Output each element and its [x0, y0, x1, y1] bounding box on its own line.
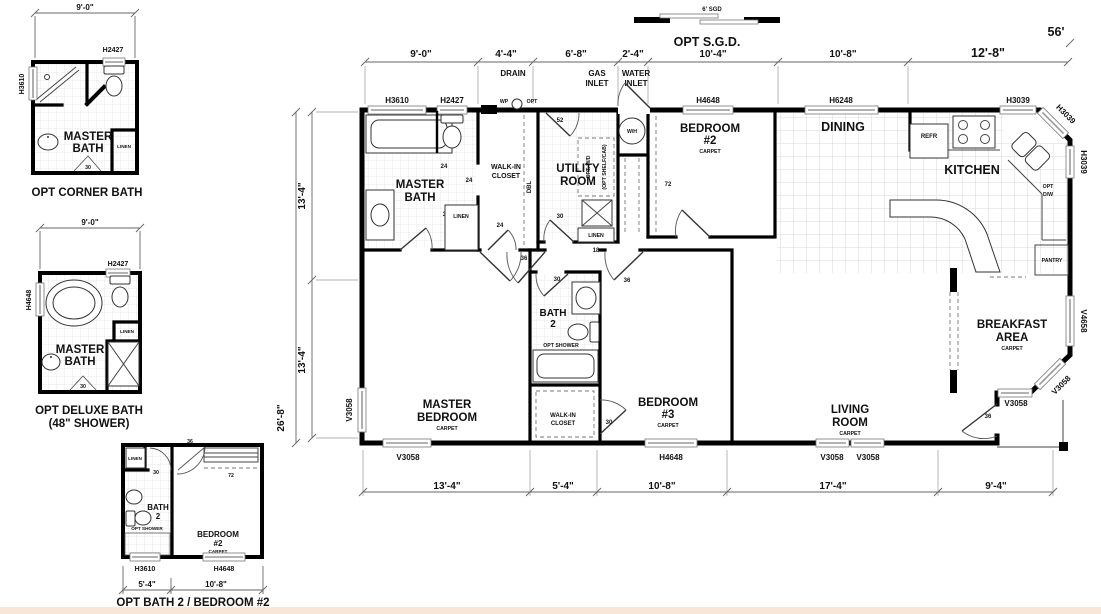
door-size: 36	[985, 414, 992, 420]
linen-label: LINEN	[588, 233, 604, 239]
refrigerator: REFR	[910, 124, 948, 158]
door-size: 36	[521, 256, 528, 262]
closet-size: 72	[228, 473, 234, 479]
carpet-label: CARPET	[839, 431, 861, 437]
shower-48	[108, 342, 139, 386]
master-sink	[366, 190, 394, 240]
svg-text:REFR: REFR	[921, 134, 938, 140]
door-size: 30	[153, 470, 159, 476]
room-label: KITCHEN	[944, 163, 1000, 177]
floorplan-drawing: 9'-0" H2427 H3610 MASTER BATH LINEN 30 O…	[0, 0, 1101, 614]
room-label: #2	[214, 539, 223, 548]
room-label: #2	[704, 135, 717, 147]
exterior-vent	[481, 105, 497, 114]
door-size: 24	[466, 178, 473, 184]
bottom-dimensions: 13'-4" 5'-4" 10'-8" 17'-4" 9'-4"	[359, 450, 1057, 496]
dbl-label: DBL	[527, 181, 533, 194]
window-label: H4648	[214, 566, 235, 573]
dim-label: 13'-4"	[297, 346, 308, 373]
floorplan-page: 9'-0" H2427 H3610 MASTER BATH LINEN 30 O…	[0, 0, 1101, 614]
door-size: 30	[80, 384, 86, 390]
sink	[126, 490, 142, 504]
linen-label: LINEN	[120, 329, 134, 334]
range	[953, 116, 995, 148]
room-label: #3	[662, 409, 675, 421]
dim-label: 17'-4"	[819, 481, 846, 492]
sink	[38, 134, 58, 150]
room-label: UTILITY	[556, 163, 600, 175]
water-heater: W/H	[619, 118, 645, 144]
door-size: 24	[497, 223, 504, 229]
dim-label: 9'-4"	[985, 481, 1007, 492]
room-label: WALK-IN	[491, 164, 521, 171]
garden-tub	[46, 280, 102, 326]
door-size: 18	[593, 248, 600, 254]
door-size: 30	[85, 165, 91, 171]
carpet-label: CARPET	[657, 423, 679, 429]
linen-label: LINEN	[117, 144, 131, 149]
gas-inlet-label: INLET	[585, 79, 608, 88]
room-label: BATH	[72, 143, 103, 155]
dishwasher-label: D/W	[1043, 192, 1053, 198]
window-label: H3610	[385, 96, 409, 105]
dim-label: 12'-8"	[971, 46, 1005, 60]
bath2-toilet	[568, 322, 599, 342]
inset-caption-sub: (48" SHOWER)	[49, 418, 130, 430]
toilet	[104, 66, 124, 96]
room-label: AREA	[996, 332, 1029, 344]
window-label: H3039	[1006, 96, 1030, 105]
window-label: V3058	[396, 453, 420, 462]
room-label: BEDROOM	[680, 123, 740, 135]
main-plan: 9'-0" 4'-4" 6'-8" 2'-4" 10'-4" 10'-8" 12…	[276, 25, 1088, 496]
room-label: ROOM	[560, 176, 596, 188]
room-label: MASTER	[423, 399, 472, 411]
room-label: CLOSET	[551, 421, 576, 427]
drain-label: DRAIN	[500, 69, 526, 78]
inset-caption: OPT DELUXE BATH	[35, 405, 143, 417]
room-label: BATH	[147, 503, 169, 512]
window-label: V3058	[345, 398, 354, 422]
window-label: H3610	[135, 566, 156, 573]
room-label: MASTER	[396, 179, 445, 191]
window-label: H2427	[103, 47, 124, 54]
room-label: BEDROOM	[417, 412, 477, 424]
room-label: CLOSET	[492, 173, 521, 180]
left-dimensions: 13'-4" 13'-4" 26'-8"	[276, 108, 358, 447]
sink	[42, 354, 60, 370]
svg-text:W/H: W/H	[627, 129, 637, 135]
room-label: WALK-IN	[550, 413, 576, 419]
inset-corner-bath: 9'-0" H2427 H3610 MASTER BATH LINEN 30 O…	[19, 3, 142, 199]
window-label: V3058	[820, 453, 844, 462]
dim-label: 5'-4"	[138, 580, 155, 589]
dim-label: 10'-8"	[829, 49, 856, 60]
door-size: 36	[187, 439, 193, 445]
room-label: DINING	[821, 120, 865, 134]
inset-deluxe-bath: 9'-0" H2427 H4648 LINEN MASTER BATH 30 O…	[26, 218, 144, 430]
sgd-caption: OPT S.G.D.	[674, 35, 741, 49]
inset-bath2-bedroom2: LINEN 30 BATH 2 OPT SHOWER 72 36 BEDROOM…	[116, 439, 269, 609]
room-label: BREAKFAST	[977, 319, 1047, 331]
linen-label: LINEN	[453, 214, 469, 220]
room-label: 2	[550, 319, 556, 330]
door-size: 24	[441, 164, 448, 170]
wp-label: WP	[500, 99, 509, 105]
door-size: 30	[554, 277, 561, 283]
dim-label: 6'-8"	[565, 49, 587, 60]
opt-shower-label: OPT SHOWER	[543, 343, 579, 349]
carpet-label: CARPET	[436, 426, 458, 432]
door-size: 36	[624, 278, 631, 284]
room-label: BEDROOM	[197, 530, 239, 539]
window-label: H3610	[19, 74, 26, 95]
master-toilet	[441, 115, 463, 148]
carpet-label: CARPET	[699, 149, 721, 155]
svg-text:PANTRY: PANTRY	[1042, 258, 1063, 264]
dim-label: 9'-0"	[410, 49, 432, 60]
svg-text:(OPT SHELF/CAB): (OPT SHELF/CAB)	[602, 144, 608, 190]
window-label: H4648	[26, 290, 33, 311]
bath2-tub	[533, 350, 598, 382]
carpet-label: CARPET	[1001, 346, 1023, 352]
room-label: LIVING	[831, 404, 869, 416]
inset-caption: OPT CORNER BATH	[32, 187, 143, 199]
sgd-size-label: 6' SGD	[702, 7, 722, 13]
water-inlet-label: WATER	[622, 69, 651, 78]
window-label: V3058	[856, 453, 880, 462]
window-label: H4648	[659, 453, 683, 462]
door-size: 30	[606, 420, 613, 426]
toilet	[110, 276, 130, 307]
room-label: 2	[156, 512, 161, 521]
dim-label: 13'-4"	[297, 182, 308, 209]
dim-label: 5'-4"	[552, 481, 574, 492]
window-label: H3039	[1079, 150, 1088, 174]
room-label: BATH	[404, 192, 435, 204]
dishwasher-label: OPT	[1043, 184, 1054, 190]
linen-label: LINEN	[128, 456, 142, 461]
room-label: ROOM	[832, 417, 868, 429]
inset-caption: OPT BATH 2 / BEDROOM #2	[116, 597, 269, 609]
window-label: V3058	[1050, 373, 1073, 396]
master-tub	[366, 115, 452, 153]
window-label: H6248	[829, 96, 853, 105]
furnace	[582, 200, 612, 226]
room-label: MASTER	[64, 131, 113, 143]
opt-shower-area	[125, 533, 170, 555]
dim-label: 9'-0"	[76, 3, 93, 12]
window-label: H2427	[440, 96, 464, 105]
dim-label: 13'-4"	[433, 481, 460, 492]
room-label: BEDROOM	[638, 397, 698, 409]
opt-label: OPT	[527, 99, 538, 105]
room-label: MASTER	[56, 344, 105, 356]
dim-total-label: 56'	[1048, 25, 1065, 39]
window-label: V4658	[1079, 309, 1088, 333]
closet-size: 72	[665, 182, 672, 188]
window-label: H2427	[108, 261, 129, 268]
door-size: 30	[557, 214, 564, 220]
exterior-light	[512, 99, 522, 109]
opt-shower-label: OPT SHOWER	[131, 526, 163, 531]
window-label: V3058	[1004, 399, 1028, 408]
dim-label: 10'-8"	[648, 481, 675, 492]
dim-label: 10'-4"	[699, 49, 726, 60]
room-label: BATH	[539, 308, 566, 319]
window-label: H4648	[696, 96, 720, 105]
door-size: 52	[557, 118, 564, 124]
toilet	[126, 511, 151, 526]
room-label: BATH	[64, 356, 95, 368]
dim-label: 9'-0"	[81, 218, 98, 227]
closet	[204, 448, 258, 468]
opt-sgd-detail: 6' SGD OPT S.G.D.	[634, 7, 780, 49]
bath2-sink	[572, 282, 600, 314]
dim-label: 26'-8"	[276, 404, 287, 431]
dim-label: 4'-4"	[495, 49, 517, 60]
room-labels: MASTER BATH WALK-IN CLOSET UTILITY ROOM …	[396, 120, 1047, 437]
dim-label: 2'-4"	[622, 49, 644, 60]
dim-label: 10'-8"	[205, 580, 227, 589]
gas-inlet-label: GAS	[588, 69, 606, 78]
